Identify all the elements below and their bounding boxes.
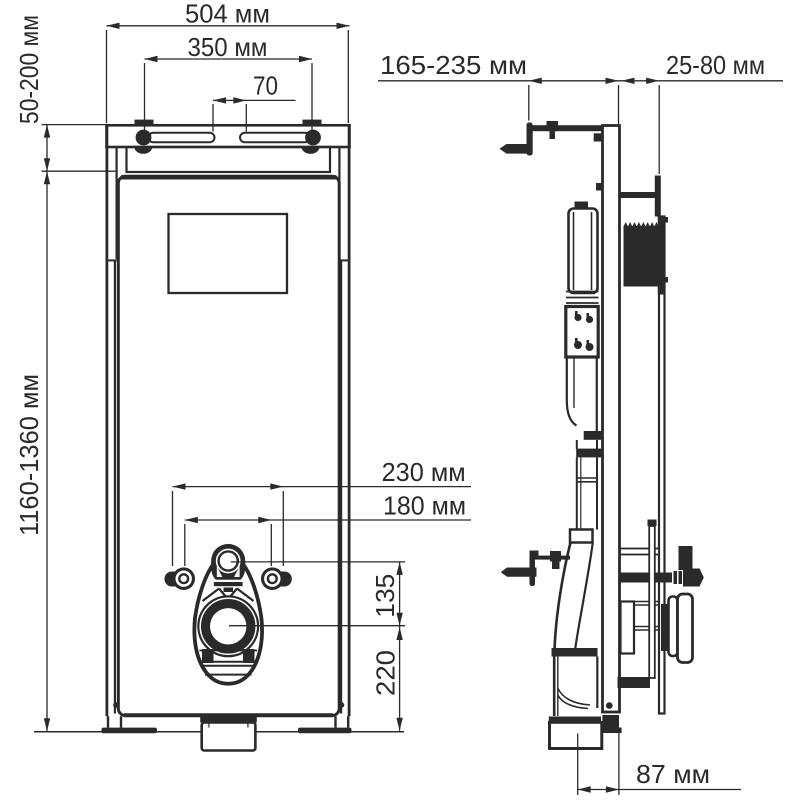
- svg-text:87 мм: 87 мм: [636, 759, 710, 789]
- svg-text:350 мм: 350 мм: [188, 32, 268, 62]
- svg-text:220: 220: [371, 650, 401, 696]
- svg-text:135: 135: [370, 574, 400, 618]
- svg-text:180 мм: 180 мм: [383, 491, 466, 521]
- svg-text:25-80 мм: 25-80 мм: [666, 50, 765, 80]
- svg-text:504 мм: 504 мм: [185, 0, 270, 29]
- svg-text:1160-1360 мм: 1160-1360 мм: [14, 374, 44, 536]
- svg-text:230 мм: 230 мм: [382, 457, 466, 487]
- svg-text:50-200 мм: 50-200 мм: [14, 15, 44, 124]
- svg-text:165-235 мм: 165-235 мм: [380, 50, 527, 80]
- svg-text:70: 70: [253, 71, 278, 101]
